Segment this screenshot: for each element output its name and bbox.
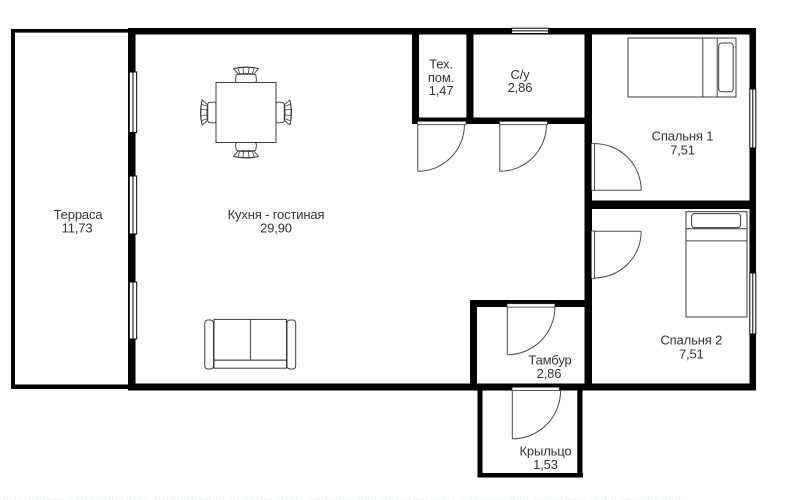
svg-text:7,51: 7,51 bbox=[679, 347, 704, 362]
svg-text:2,86: 2,86 bbox=[537, 366, 562, 381]
svg-text:Спальня 2: Спальня 2 bbox=[660, 333, 722, 348]
svg-text:11,73: 11,73 bbox=[62, 221, 93, 236]
svg-text:1,47: 1,47 bbox=[429, 83, 454, 98]
svg-text:планировка ремпланнер планир: планировка ремпланнер планировка ремплан… bbox=[2, 493, 682, 500]
svg-text:29,90: 29,90 bbox=[260, 221, 292, 236]
svg-text:1,53: 1,53 bbox=[533, 457, 558, 472]
svg-text:2,86: 2,86 bbox=[508, 80, 533, 95]
svg-text:7,51: 7,51 bbox=[670, 142, 695, 157]
